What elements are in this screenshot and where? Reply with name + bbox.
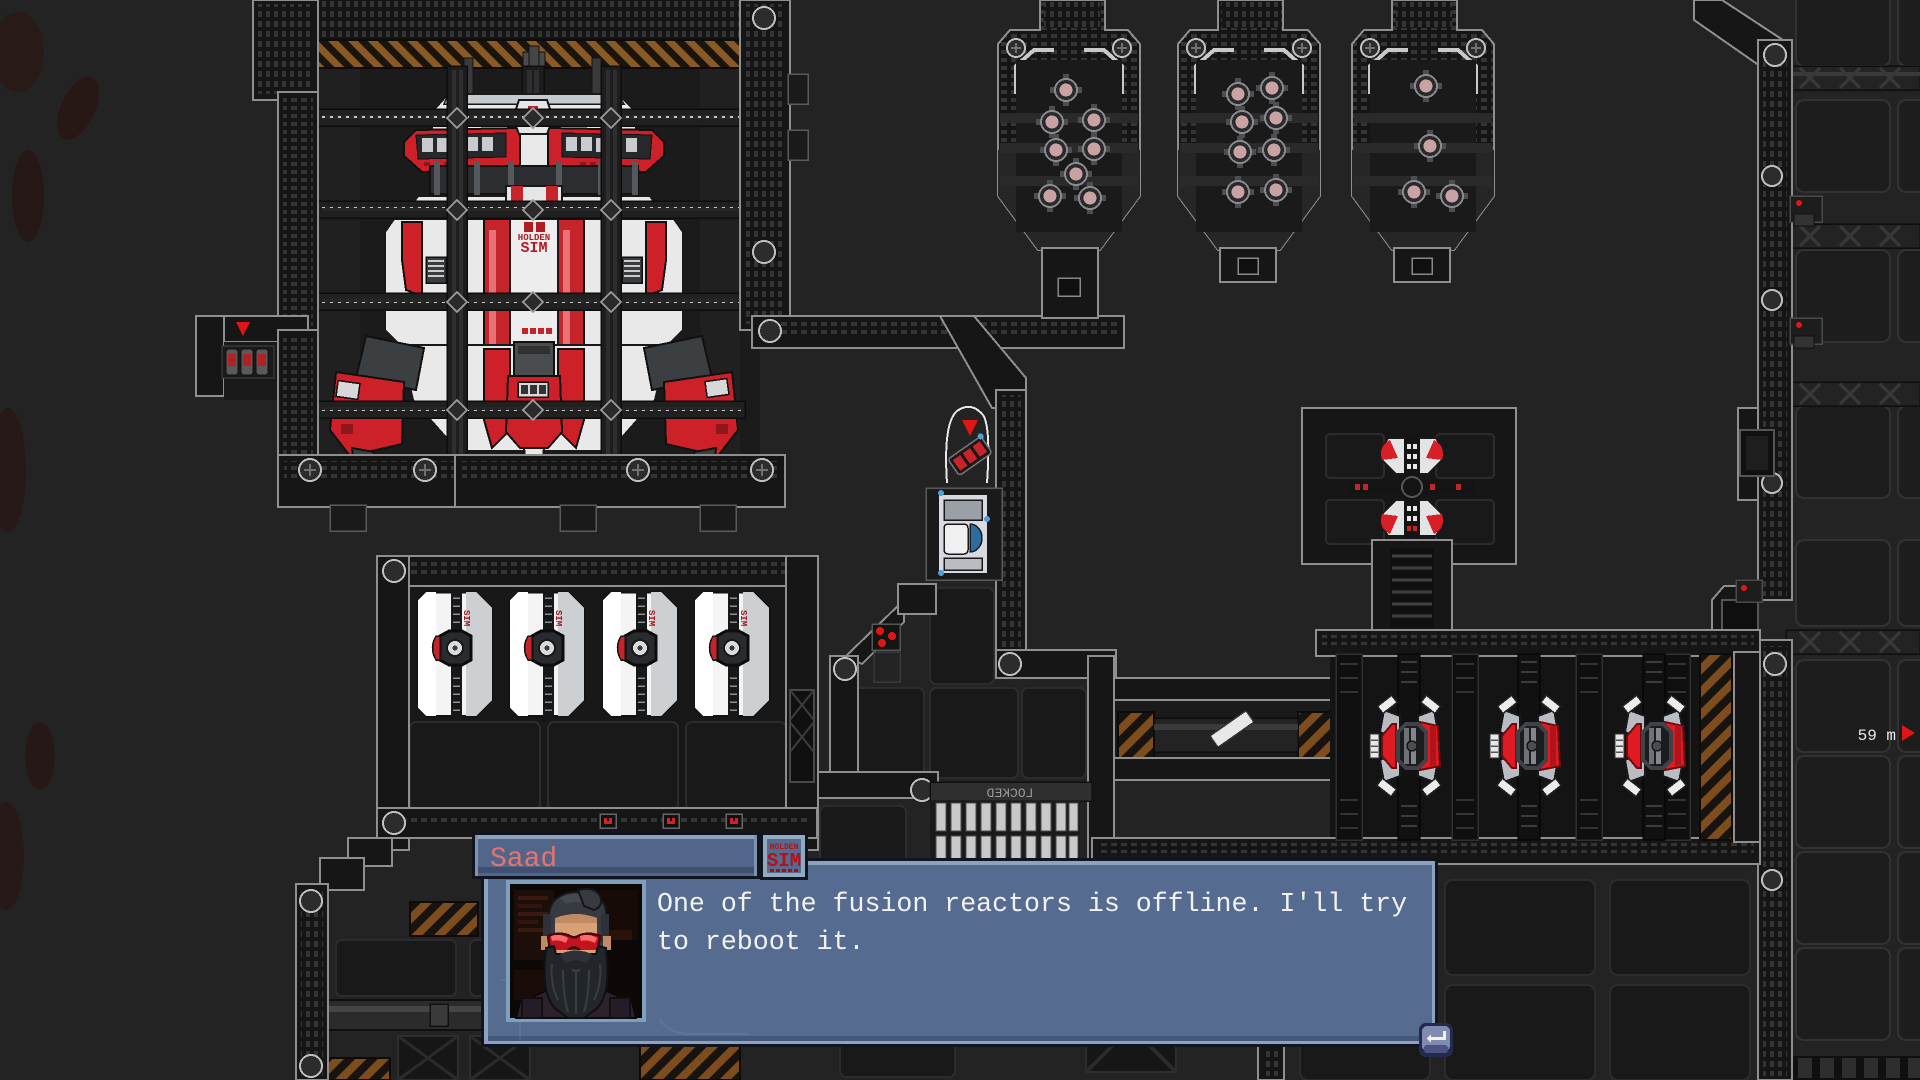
svg-text:SIM: SIM [767, 850, 801, 872]
svg-text:SIM: SIM [461, 610, 471, 626]
svg-text:to reboot it.: to reboot it. [657, 927, 864, 957]
svg-text:Saad: Saad [490, 844, 557, 875]
svg-text:LOCKED: LOCKED [986, 786, 1033, 801]
svg-text:SIM: SIM [520, 240, 547, 257]
svg-text:One of the fusion reactors is: One of the fusion reactors is offline. I… [657, 889, 1407, 919]
svg-text:59 m: 59 m [1858, 727, 1896, 745]
